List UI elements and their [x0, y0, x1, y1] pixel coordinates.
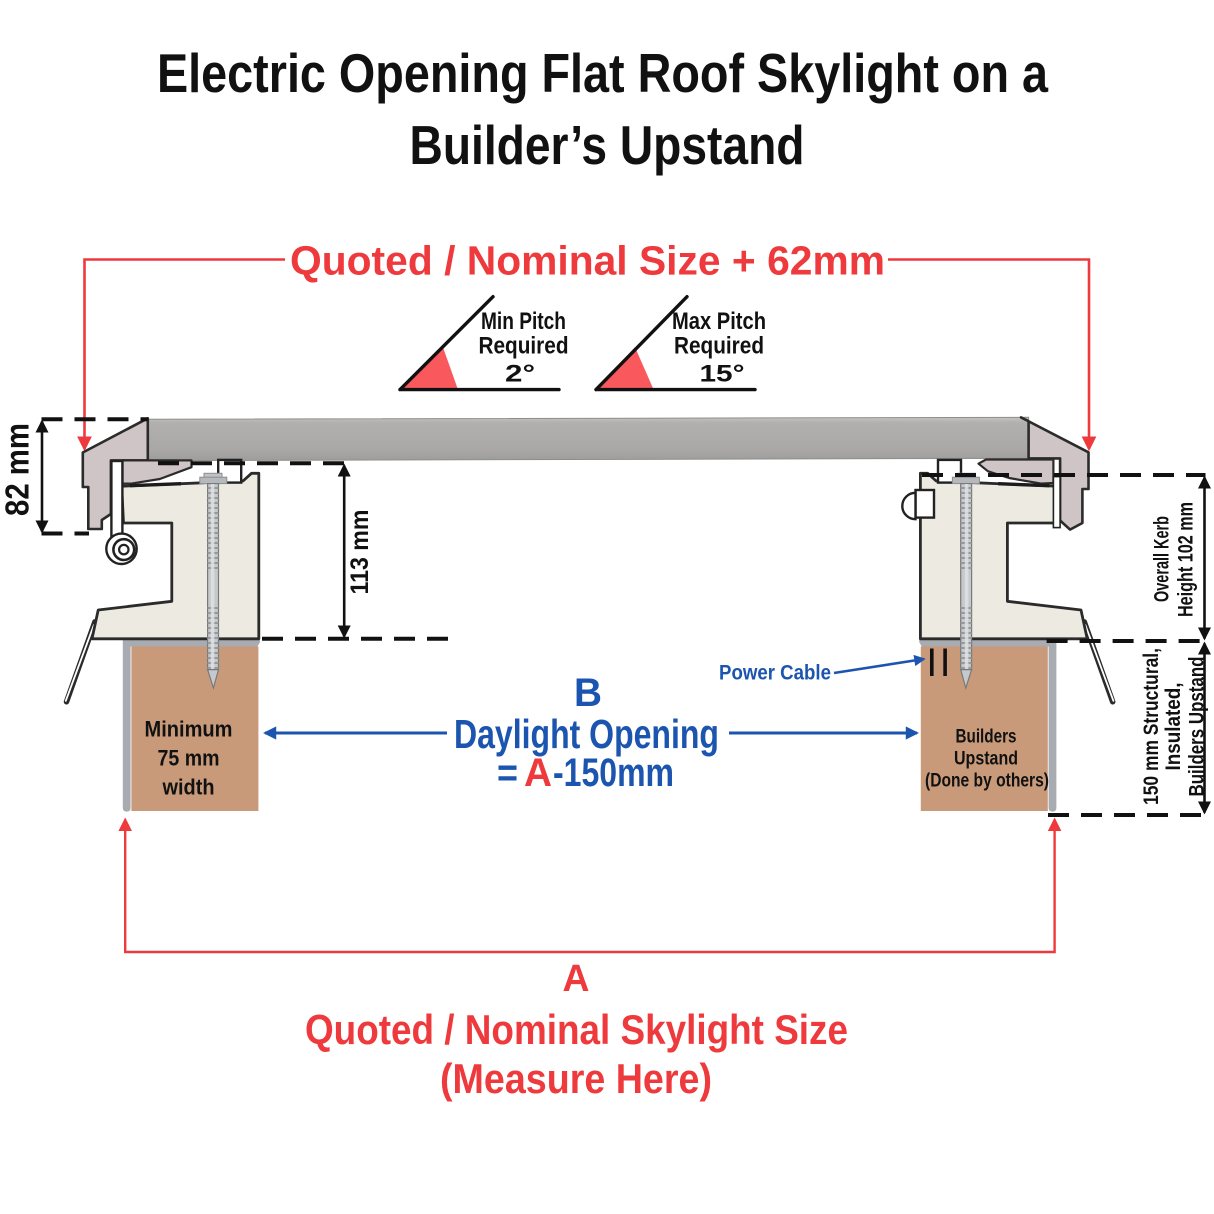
svg-text:Electric Opening Flat Roof Sky: Electric Opening Flat Roof Skylight on a — [157, 42, 1048, 104]
svg-text:(Done by others): (Done by others) — [925, 771, 1049, 792]
svg-text:B: B — [574, 671, 602, 715]
svg-text:=: = — [497, 751, 518, 795]
svg-text:150 mm Structural,: 150 mm Structural, — [1140, 648, 1163, 805]
svg-text:Min Pitch: Min Pitch — [481, 308, 566, 335]
svg-text:-150mm: -150mm — [553, 751, 674, 795]
svg-text:Builders Upstand: Builders Upstand — [1186, 657, 1209, 797]
svg-text:Quoted / Nominal Skylight Size: Quoted / Nominal Skylight Size — [305, 1006, 848, 1053]
svg-text:82 mm: 82 mm — [0, 423, 36, 516]
svg-text:width: width — [162, 775, 215, 800]
svg-text:(Measure Here): (Measure Here) — [440, 1055, 712, 1102]
svg-text:Required: Required — [674, 333, 764, 360]
svg-text:Power Cable: Power Cable — [719, 662, 831, 685]
svg-text:Overall Kerb: Overall Kerb — [1151, 516, 1174, 602]
svg-text:15°: 15° — [700, 361, 745, 388]
svg-text:Required: Required — [479, 333, 569, 360]
svg-text:A: A — [563, 958, 590, 1000]
svg-text:Minimum: Minimum — [145, 717, 233, 742]
svg-text:Builders: Builders — [956, 727, 1017, 748]
svg-text:Builder’s Upstand: Builder’s Upstand — [410, 114, 805, 176]
svg-text:A: A — [524, 751, 552, 795]
svg-text:Upstand: Upstand — [954, 749, 1018, 770]
svg-text:113 mm: 113 mm — [346, 510, 374, 595]
svg-text:Insulated,: Insulated, — [1162, 683, 1185, 771]
svg-text:Max Pitch: Max Pitch — [672, 308, 766, 335]
svg-text:75 mm: 75 mm — [158, 746, 220, 771]
svg-text:Quoted / Nominal Size + 62mm: Quoted / Nominal Size + 62mm — [290, 238, 885, 284]
svg-text:2°: 2° — [505, 361, 535, 388]
svg-text:Height 102 mm: Height 102 mm — [1175, 502, 1198, 617]
